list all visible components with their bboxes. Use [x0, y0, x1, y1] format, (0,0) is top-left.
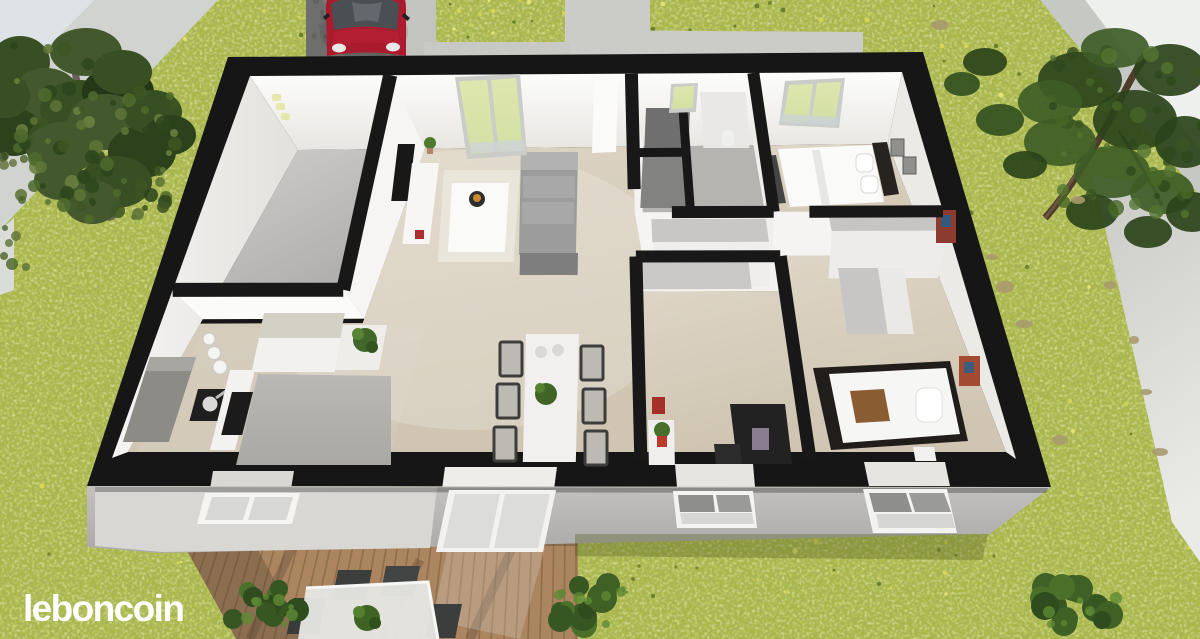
svg-text:leboncoin: leboncoin — [23, 588, 183, 629]
